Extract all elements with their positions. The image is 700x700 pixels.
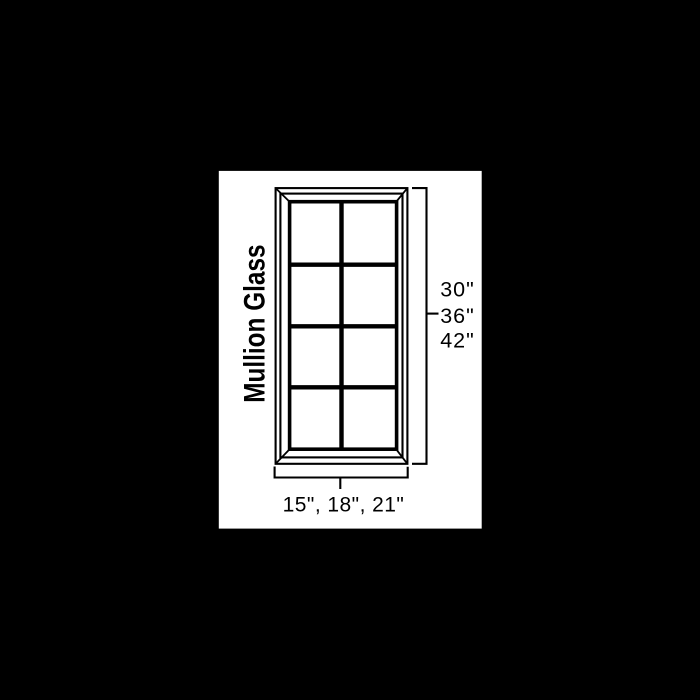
svg-text:15", 18", 21": 15", 18", 21": [283, 493, 405, 516]
svg-text:Mullion Glass: Mullion Glass: [238, 244, 271, 402]
svg-text:36": 36": [440, 304, 475, 328]
svg-text:42": 42": [440, 329, 475, 353]
svg-text:30": 30": [440, 278, 475, 302]
